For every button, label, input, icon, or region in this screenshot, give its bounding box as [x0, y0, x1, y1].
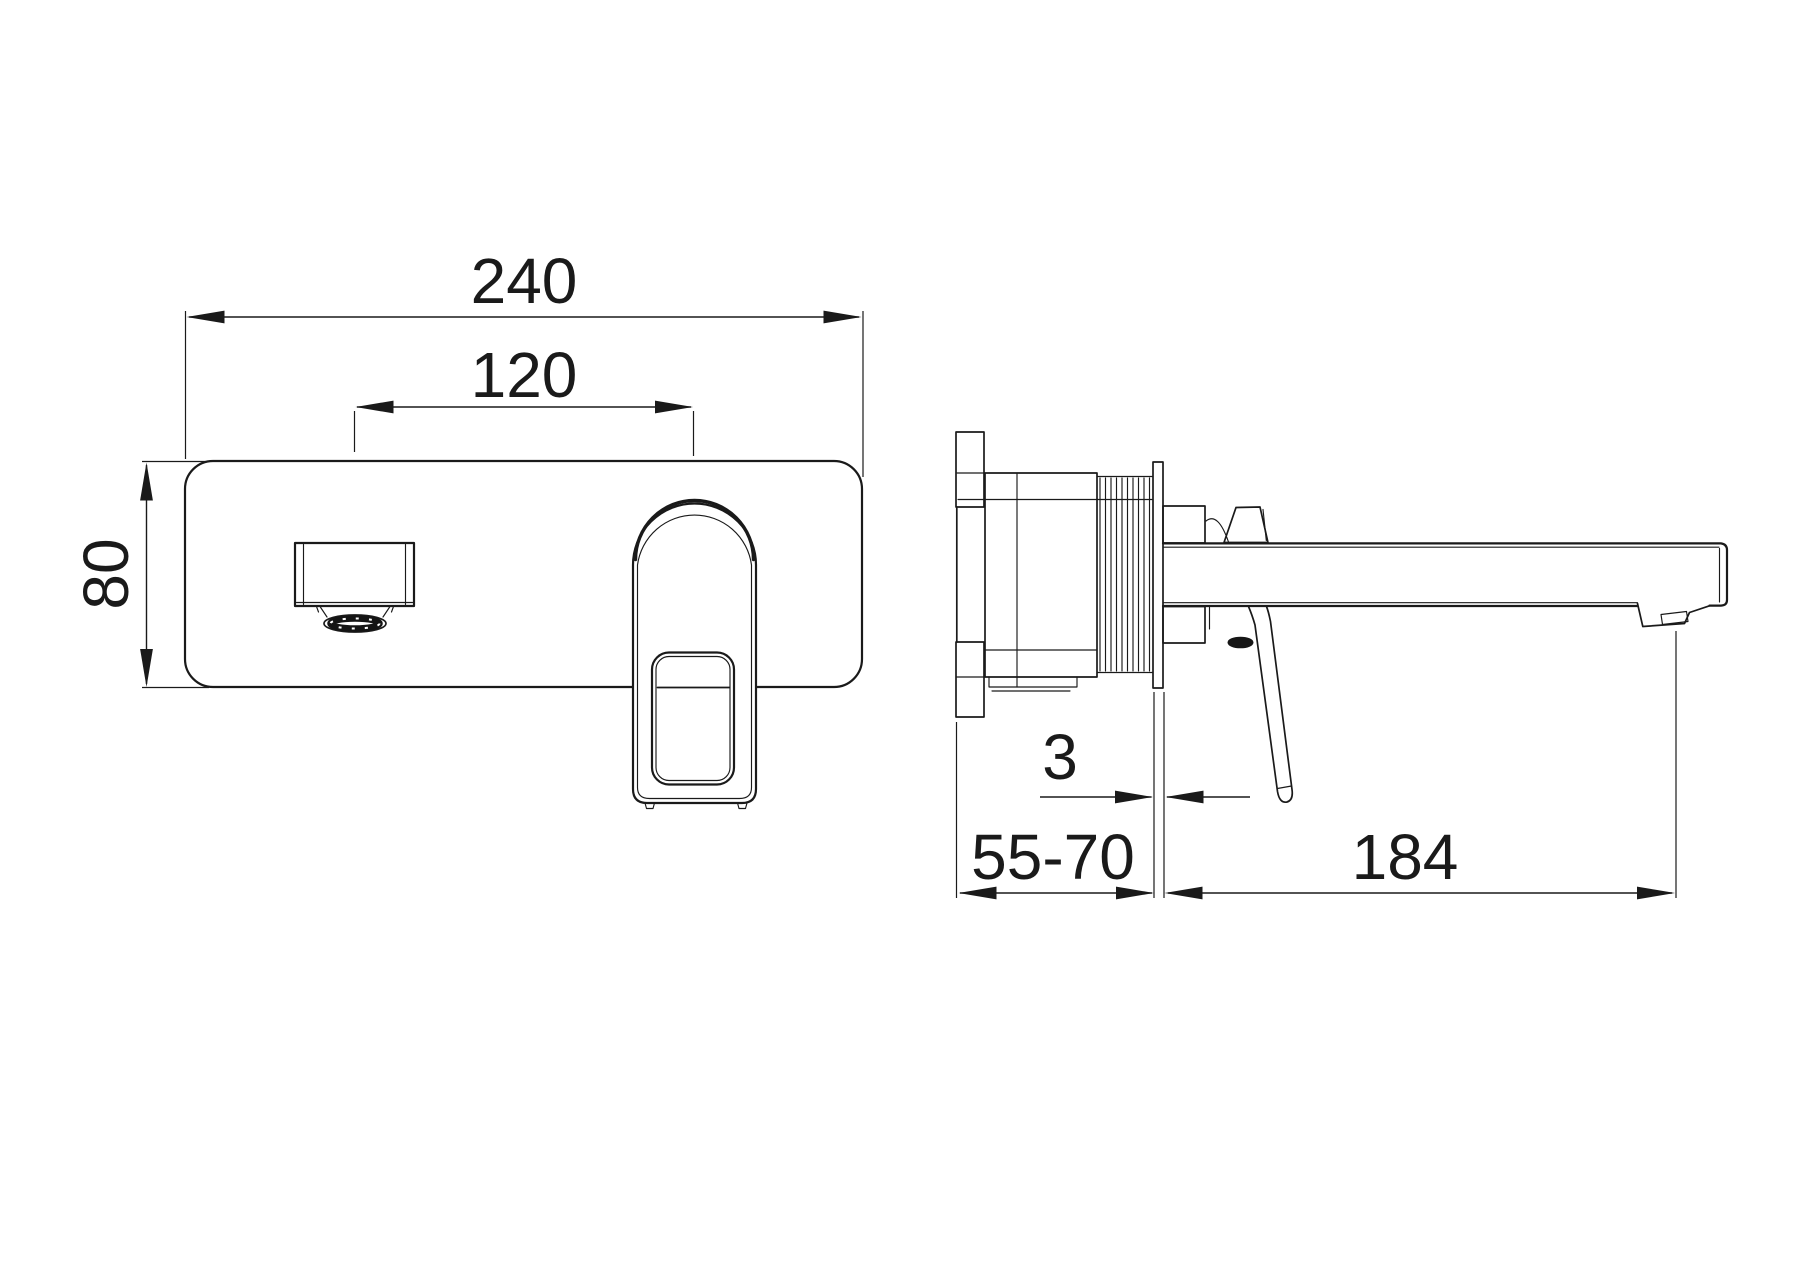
bracket-top-lug [956, 432, 984, 507]
aerator-face-side [1661, 612, 1688, 625]
threaded-shank [1097, 477, 1155, 673]
lever-top-grip [1224, 507, 1268, 543]
bracket-bottom-lug [956, 642, 984, 717]
wall-plate-front [185, 461, 862, 687]
handle-side-bottom [1163, 607, 1292, 803]
arrowhead-right [655, 401, 693, 414]
technical-drawing-page: 240 120 80 [0, 0, 1800, 1273]
arrowhead-left [356, 401, 394, 414]
dimension-spout-reach: 184 [1165, 631, 1677, 899]
dim-label-trim-thickness: 3 [1042, 721, 1078, 793]
mixer-body [985, 473, 1097, 677]
dim-label-hole-centers: 120 [471, 339, 578, 411]
body-step [989, 677, 1077, 687]
lower-body-block [1163, 607, 1205, 644]
escutcheon-side [1153, 462, 1163, 688]
front-view: 240 120 80 [70, 245, 863, 809]
handle-front [633, 501, 756, 809]
arrowhead-left [1115, 791, 1153, 804]
dimension-hole-centers: 120 [355, 339, 694, 456]
spout-front-body [295, 543, 414, 606]
arrowhead-right [1166, 791, 1204, 804]
spout-side-outline [1163, 543, 1727, 605]
arrowhead-right [1637, 887, 1675, 900]
set-screw-side [1228, 637, 1253, 648]
wall-bracket-side [956, 432, 985, 717]
dim-label-plate-height: 80 [70, 538, 142, 609]
arrowhead-bottom [140, 649, 153, 687]
arrowhead-right [824, 311, 862, 324]
arrowhead-left [187, 311, 225, 324]
handle-base-block [1163, 506, 1205, 543]
spout-side [1163, 543, 1727, 626]
mixer-body-side [958, 473, 1152, 691]
side-view: 3 55-70 184 [956, 432, 1727, 899]
handle-side-top [1163, 506, 1268, 543]
lever-side [1249, 607, 1293, 803]
lever-tip-line [1278, 786, 1292, 789]
dim-label-plate-width: 240 [471, 245, 578, 317]
arrowhead-left [1165, 887, 1203, 900]
dim-label-spout-reach: 184 [1352, 821, 1459, 893]
arrowhead-top [140, 463, 153, 501]
dim-label-installation-depth: 55-70 [971, 821, 1135, 893]
faucet-dimension-drawing: 240 120 80 [0, 0, 1800, 1273]
